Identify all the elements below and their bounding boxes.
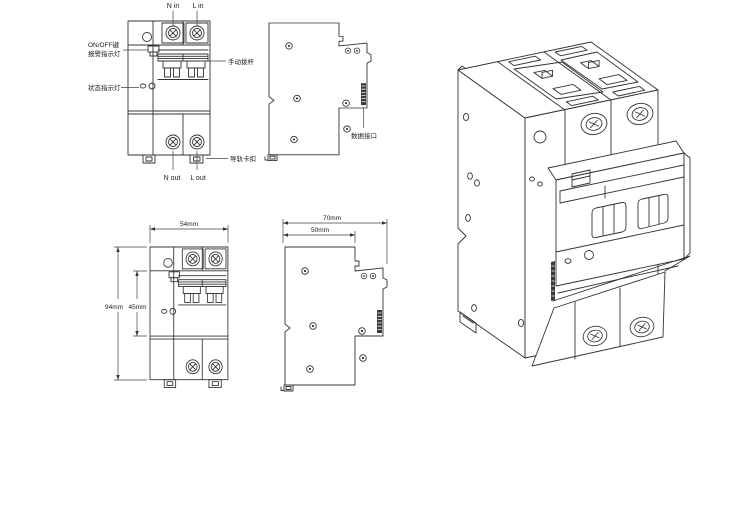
leader-line bbox=[173, 11, 197, 27]
breaker-side-drawing bbox=[281, 247, 387, 391]
front-view-dimensioned: 54mm 94mm 45mm bbox=[105, 221, 228, 388]
side-view-dimensioned: 70mm 50mm bbox=[281, 215, 387, 391]
label-status-indicator: 状态指示灯 bbox=[88, 83, 121, 92]
label-n-out: N out bbox=[164, 175, 181, 182]
breaker-front-drawing bbox=[150, 247, 228, 388]
dimension-total-depth-value: 70mm bbox=[323, 215, 341, 222]
dimension-total-height: 94mm bbox=[105, 247, 147, 380]
label-manual-lever: 手动拨杆 bbox=[228, 57, 255, 66]
front-view-annotated: N in L in ON/OFF键 报警指示灯 状态指示灯 手动拨杆 导轨卡扣 … bbox=[88, 3, 256, 182]
label-alarm-indicator: 报警指示灯 bbox=[88, 49, 121, 58]
label-n-in: N in bbox=[167, 3, 180, 10]
label-l-out: L out bbox=[190, 175, 205, 182]
label-din-rail-clip: 导轨卡扣 bbox=[230, 154, 256, 163]
label-data-port: 数据接口 bbox=[351, 131, 377, 140]
dimension-base-depth-value: 50mm bbox=[311, 227, 329, 234]
connector-strip bbox=[551, 261, 555, 301]
dimension-width: 54mm bbox=[150, 221, 228, 243]
dimension-base-depth: 50mm bbox=[283, 227, 355, 243]
side-view-annotated: 数据接口 bbox=[265, 23, 377, 161]
dimension-body-height-value: 45mm bbox=[128, 304, 146, 311]
side-panel bbox=[458, 70, 525, 358]
diagram-canvas: N in L in ON/OFF键 报警指示灯 状态指示灯 手动拨杆 导轨卡扣 … bbox=[0, 0, 752, 522]
dimension-total-depth: 70mm bbox=[283, 215, 387, 264]
toggle-protrusion bbox=[548, 141, 690, 293]
isometric-view bbox=[458, 42, 690, 366]
dimension-total-height-value: 94mm bbox=[105, 304, 123, 311]
dimension-body-height: 45mm bbox=[128, 271, 147, 336]
dimension-width-value: 54mm bbox=[180, 221, 198, 228]
breaker-front-drawing bbox=[128, 21, 210, 163]
label-l-in: L in bbox=[192, 3, 203, 10]
breaker-diagram: N in L in ON/OFF键 报警指示灯 状态指示灯 手动拨杆 导轨卡扣 … bbox=[0, 0, 752, 522]
label-on-off-button: ON/OFF键 bbox=[88, 40, 120, 49]
